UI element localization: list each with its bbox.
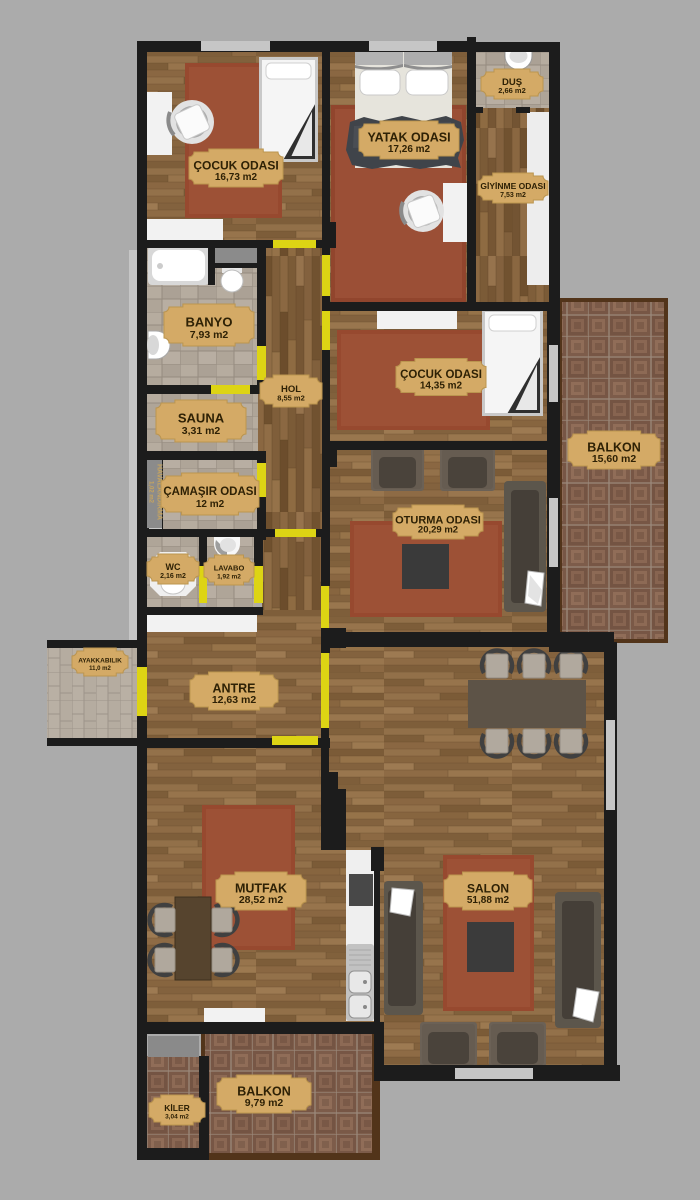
svg-text:11,0 m2: 11,0 m2	[89, 666, 111, 672]
svg-text:ÇOCUK ODASI: ÇOCUK ODASI	[193, 158, 278, 172]
svg-text:AYAKKABILIK: AYAKKABILIK	[78, 657, 122, 664]
svg-text:KİLER: KİLER	[164, 1103, 190, 1113]
svg-text:YATAK ODASI: YATAK ODASI	[367, 130, 450, 144]
svg-text:14,35 m2: 14,35 m2	[420, 381, 463, 392]
svg-text:2,66 m2: 2,66 m2	[498, 86, 526, 95]
svg-text:GİYİNME ODASI: GİYİNME ODASI	[480, 181, 545, 191]
svg-text:ÇOCUK ODASI: ÇOCUK ODASI	[400, 369, 482, 381]
svg-text:7,93 m2: 7,93 m2	[190, 329, 229, 341]
svg-text:WC: WC	[166, 562, 181, 572]
svg-text:20,29 m2: 20,29 m2	[418, 525, 458, 536]
svg-text:1,92 m2: 1,92 m2	[217, 574, 241, 581]
svg-text:51,88 m2: 51,88 m2	[467, 895, 510, 906]
svg-text:8,55 m2: 8,55 m2	[277, 394, 305, 403]
svg-text:12,63 m2: 12,63 m2	[212, 694, 257, 706]
svg-text:BANYO: BANYO	[186, 314, 233, 329]
svg-text:15,60 m2: 15,60 m2	[592, 453, 637, 465]
svg-text:LAVABO: LAVABO	[214, 564, 245, 573]
svg-text:3,31 m2: 3,31 m2	[182, 425, 221, 437]
svg-text:12 m2: 12 m2	[196, 499, 225, 510]
svg-text:17,26 m2: 17,26 m2	[388, 144, 431, 155]
svg-text:3,04 m2: 3,04 m2	[165, 1114, 189, 1121]
svg-text:2,16 m2: 2,16 m2	[160, 573, 186, 580]
svg-text:ÇAMAŞIR ODASI: ÇAMAŞIR ODASI	[163, 486, 256, 498]
svg-text:9,79 m2: 9,79 m2	[245, 1097, 284, 1109]
svg-text:16,73 m2: 16,73 m2	[215, 172, 258, 183]
svg-text:7,53 m2: 7,53 m2	[500, 192, 526, 199]
svg-text:SALON: SALON	[467, 881, 509, 895]
svg-text:1,02 m2: 1,02 m2	[148, 481, 154, 504]
svg-text:28,52 m2: 28,52 m2	[239, 894, 284, 906]
svg-text:SAUNA: SAUNA	[178, 410, 225, 425]
